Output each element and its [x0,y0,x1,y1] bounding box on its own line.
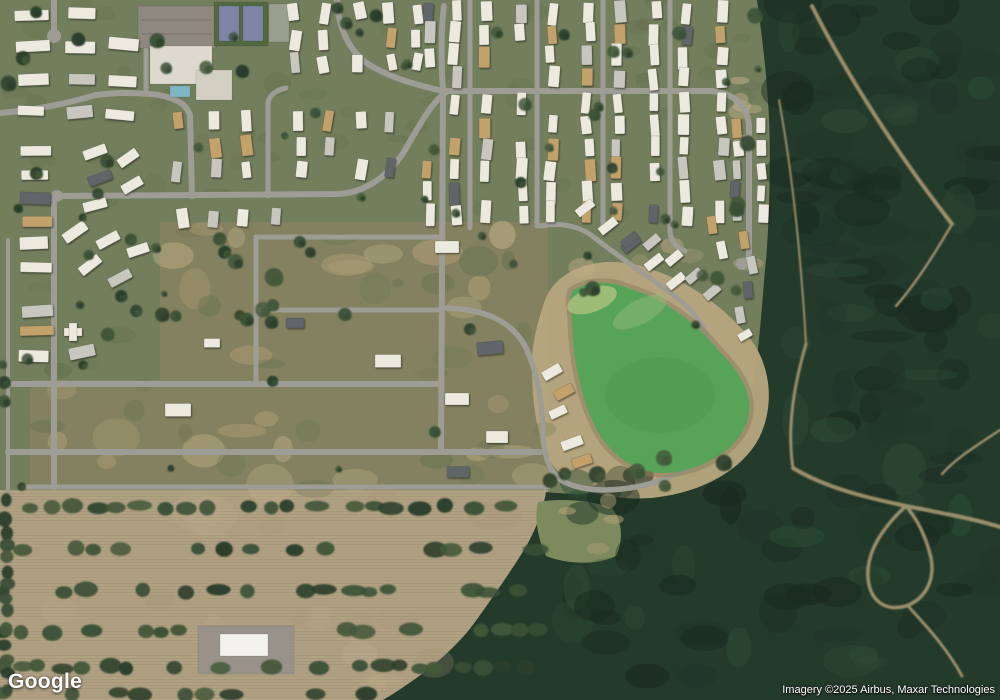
imagery-attribution: Imagery ©2025 Airbus, Maxar Technologies [782,684,995,696]
satellite-map[interactable] [0,0,1000,700]
satellite-imagery [0,0,1000,700]
google-logo[interactable]: Google [8,670,82,694]
map-viewport: Google Imagery ©2025 Airbus, Maxar Techn… [0,0,1000,700]
